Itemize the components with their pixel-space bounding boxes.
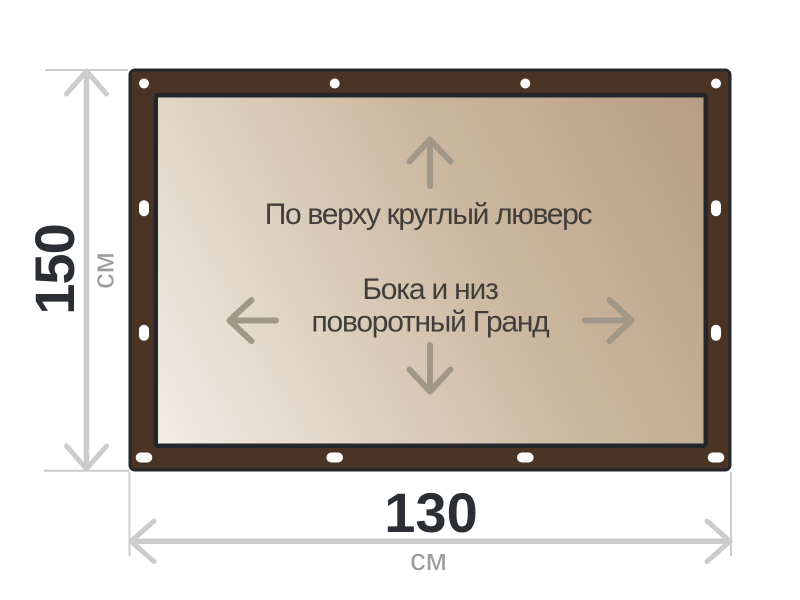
svg-text:см: см [410,542,447,577]
svg-text:130: 130 [384,481,477,544]
svg-text:По верху круглый люверс: По верху круглый люверс [265,198,593,231]
svg-text:см: см [86,252,121,289]
svg-text:поворотный Гранд: поворотный Гранд [312,306,550,339]
svg-text:Бока и низ: Бока и низ [362,273,498,306]
svg-text:150: 150 [23,224,86,314]
